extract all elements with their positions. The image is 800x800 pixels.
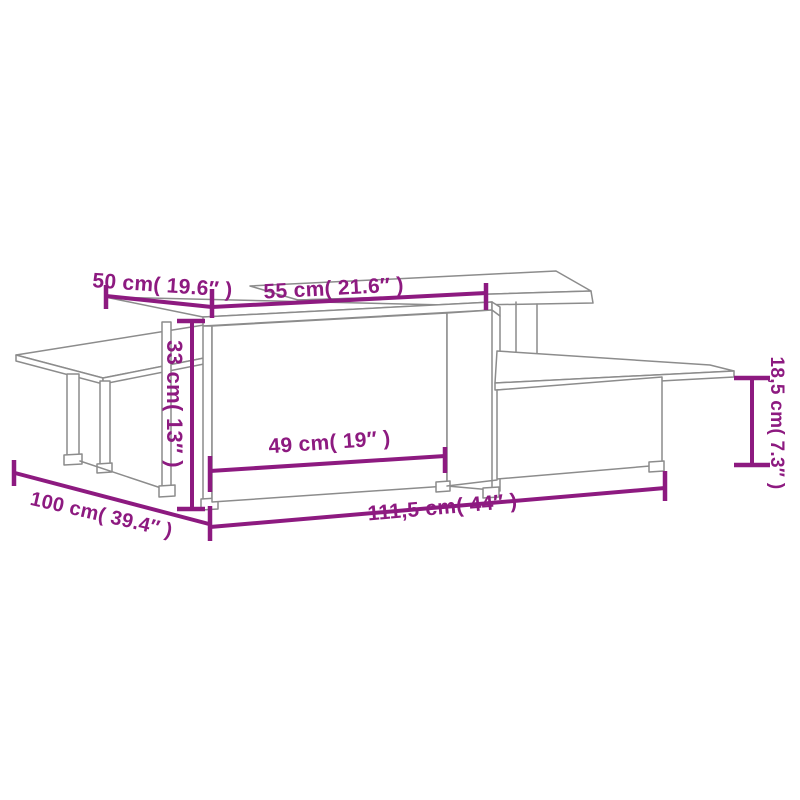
main-shelf-front-face xyxy=(497,377,662,479)
dimension-label-111cm: 111,5 cm( 44″ ) xyxy=(367,490,518,526)
coffee-tables-dimension-diagram: 50 cm( 19.6″ ) 55 cm( 21.6″ ) 33 cm( 13″… xyxy=(0,0,800,800)
rear-table-mid-foot xyxy=(159,485,175,497)
rear-shelf-panel-b xyxy=(100,381,110,467)
rear-shelf-foot-a xyxy=(64,454,82,465)
dimension-label-18cm: 18,5 cm( 7.3″ ) xyxy=(766,357,787,490)
main-table-right-face xyxy=(447,310,492,490)
main-table-front-panel xyxy=(212,313,447,502)
furniture-line-art xyxy=(16,271,734,510)
main-shelf-foot xyxy=(649,461,664,472)
dimension-label-33cm: 33 cm( 13″ ) xyxy=(162,340,187,468)
rear-table-right-panel xyxy=(516,302,537,353)
rear-shelf-bottom-edge xyxy=(80,461,161,488)
dimension-diagram-canvas: 50 cm( 19.6″ ) 55 cm( 21.6″ ) 33 cm( 13″… xyxy=(0,0,800,800)
rear-shelf-panel-a xyxy=(67,374,79,457)
